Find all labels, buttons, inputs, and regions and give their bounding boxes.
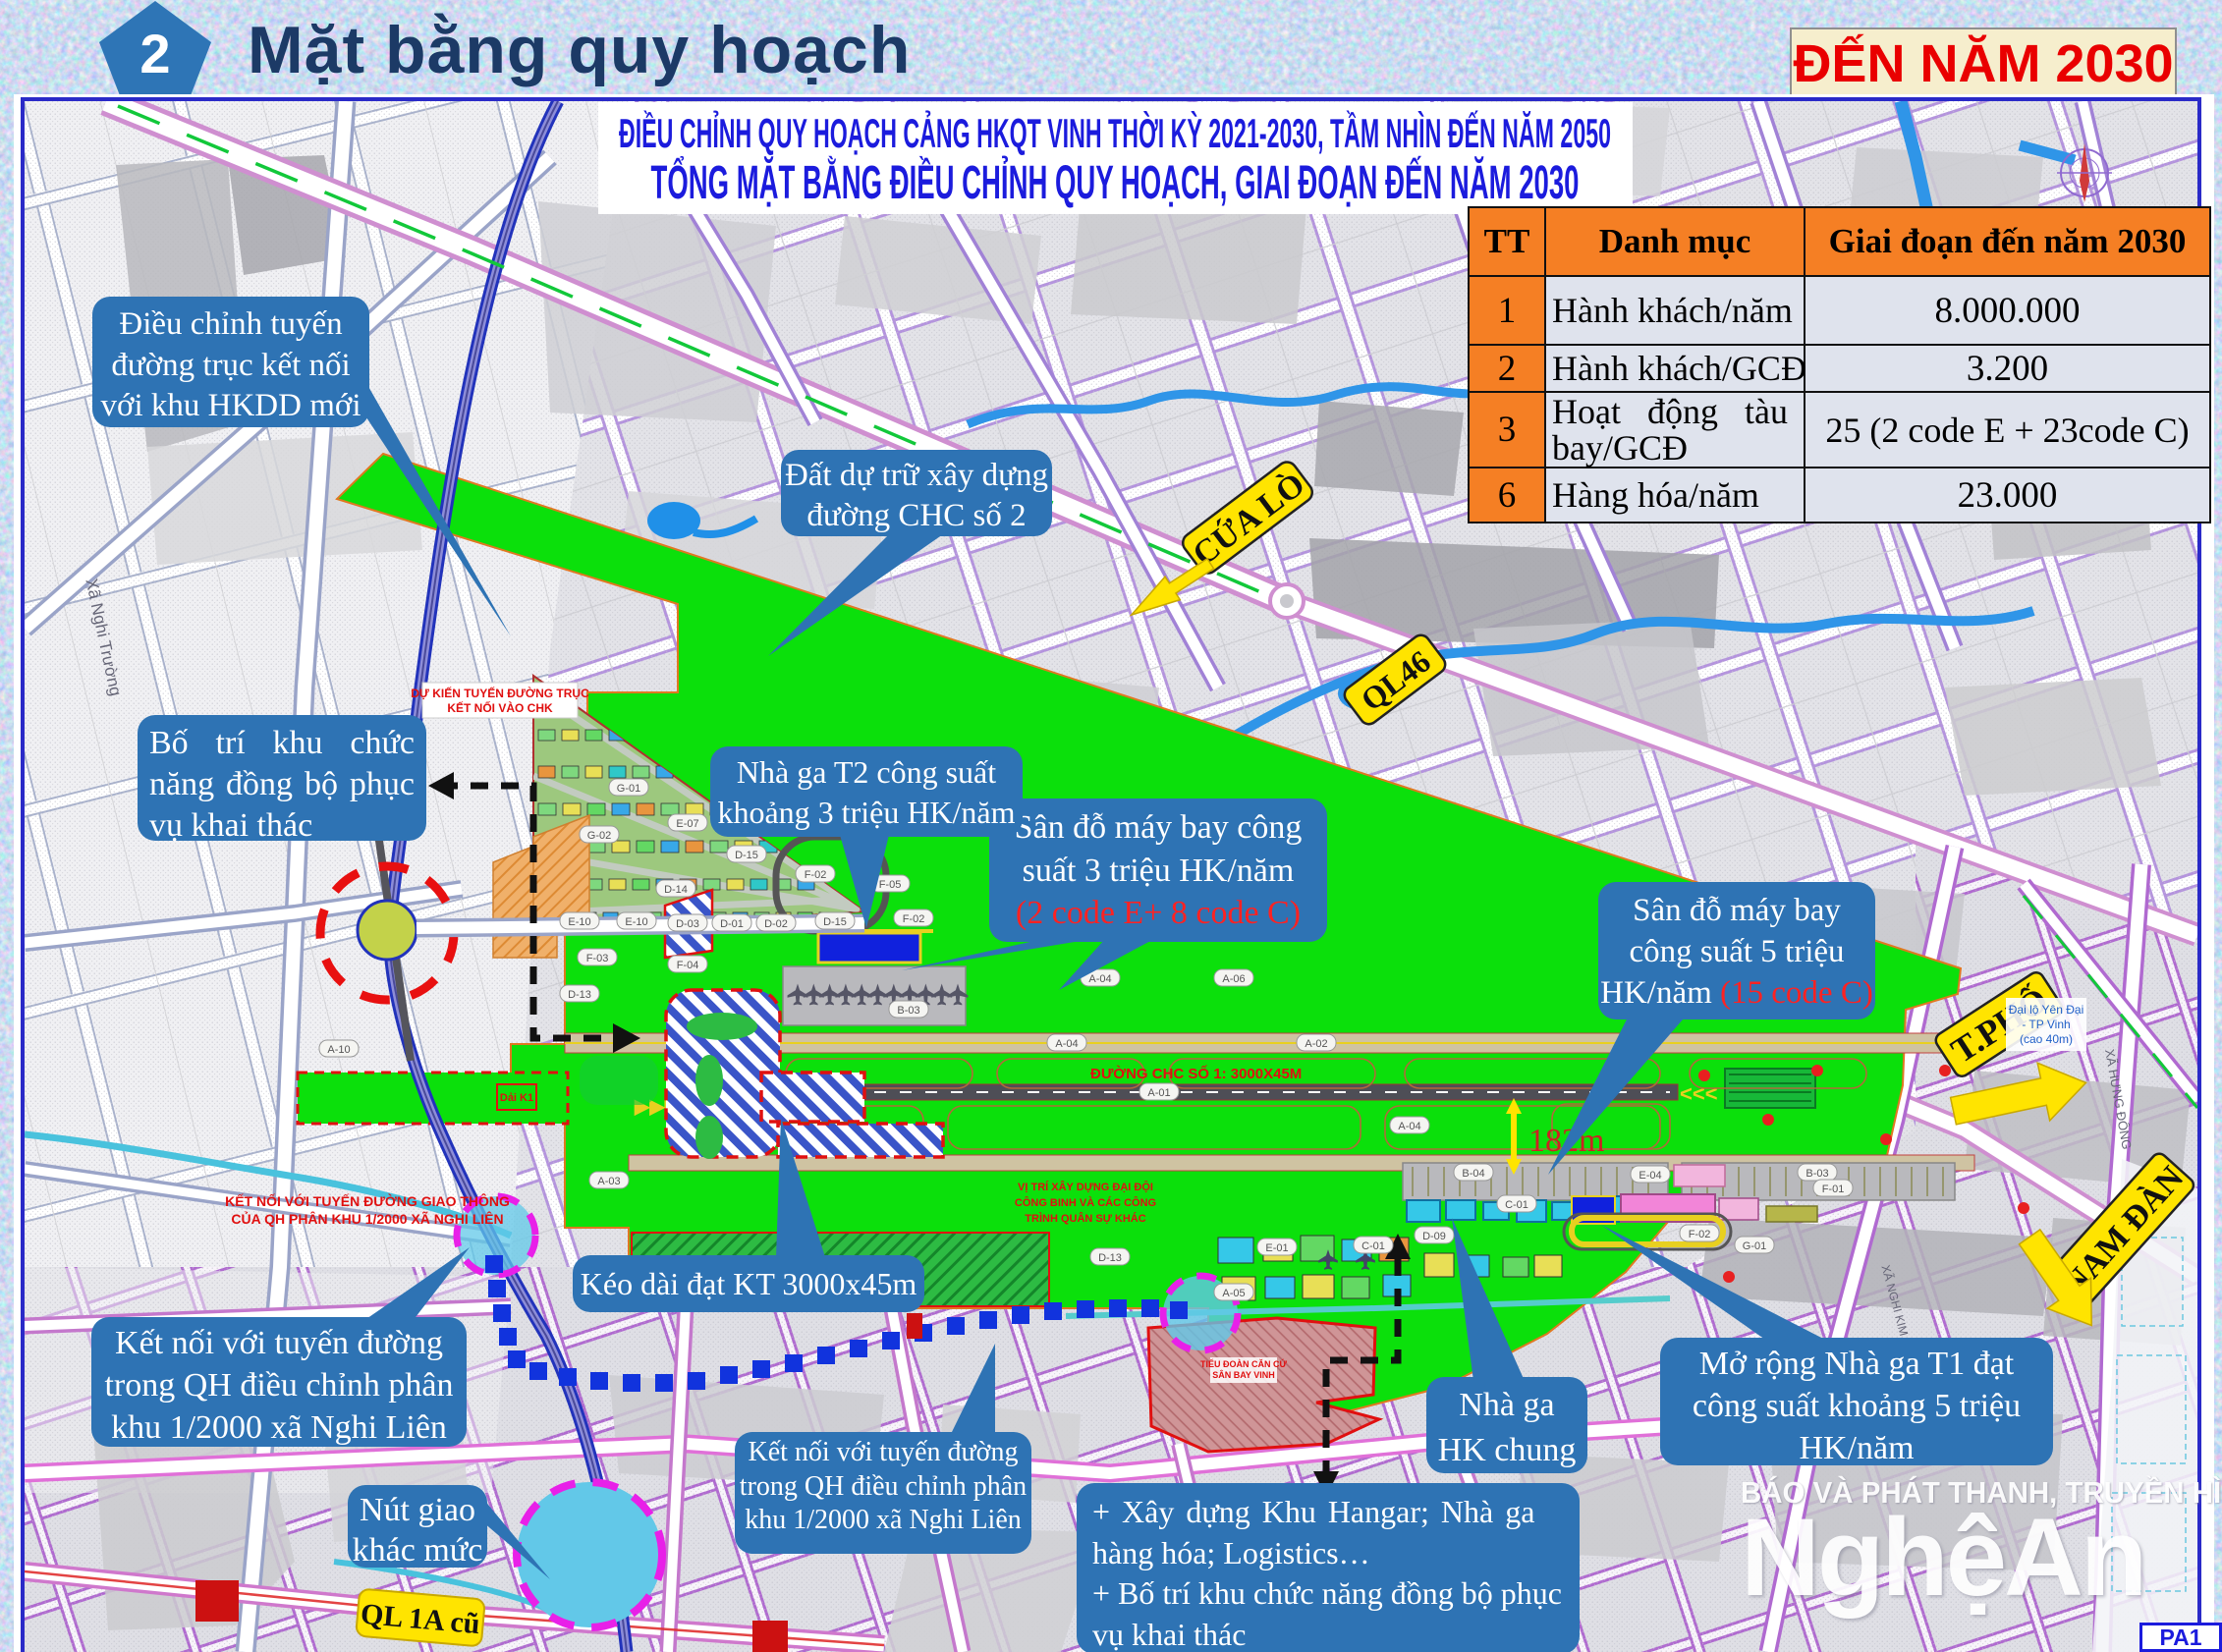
svg-text:A-04: A-04 (1398, 1121, 1420, 1132)
svg-text:E-07: E-07 (676, 818, 698, 830)
svg-text:D-13: D-13 (568, 989, 591, 1001)
svg-text:Dải K1: Dải K1 (500, 1092, 533, 1104)
svg-text:E-10: E-10 (568, 916, 590, 928)
svg-text:CÔNG BINH VÀ CÁC CÔNG: CÔNG BINH VÀ CÁC CÔNG (1015, 1196, 1156, 1209)
svg-text:C-01: C-01 (1361, 1240, 1385, 1252)
svg-text:E-01: E-01 (1265, 1242, 1288, 1254)
svg-text:DỰ KIẾN TUYẾN ĐƯỜNG TRỤC: DỰ KIẾN TUYẾN ĐƯỜNG TRỤC (411, 686, 589, 700)
svg-text:A-01: A-01 (1147, 1087, 1170, 1099)
svg-text:ĐƯỜNG CHC SỐ 1: 3000X45M: ĐƯỜNG CHC SỐ 1: 3000X45M (1090, 1065, 1302, 1082)
svg-text:C-01: C-01 (1505, 1199, 1528, 1211)
svg-text:A-10: A-10 (327, 1044, 350, 1056)
svg-text:D-03: D-03 (676, 918, 699, 930)
svg-text:CỦA QH PHÂN KHU 1/2000 XÃ NGHI: CỦA QH PHÂN KHU 1/2000 XÃ NGHI LIÊN (231, 1210, 503, 1227)
svg-text:F-01: F-01 (1822, 1184, 1845, 1195)
svg-text:A-02: A-02 (1305, 1038, 1327, 1050)
svg-text:- TP Vinh: - TP Vinh (2022, 1018, 2070, 1031)
svg-text:ĐIỀU CHỈNH QUY HOẠCH CẢNG HKQT: ĐIỀU CHỈNH QUY HOẠCH CẢNG HKQT VINH THỜI… (619, 109, 1611, 156)
svg-text:G-01: G-01 (617, 783, 640, 795)
svg-text:F-04: F-04 (677, 960, 699, 971)
svg-text:B-03: B-03 (1805, 1168, 1828, 1180)
svg-text:D-14: D-14 (664, 884, 688, 896)
svg-text:F-02: F-02 (903, 913, 925, 925)
svg-text:D-15: D-15 (823, 916, 847, 928)
svg-text:F-02: F-02 (1689, 1229, 1711, 1240)
svg-text:A-03: A-03 (597, 1176, 620, 1187)
svg-text:D-09: D-09 (1422, 1231, 1446, 1242)
svg-text:KẾT NỐI VỚI TUYẾN ĐƯỜNG GIAO T: KẾT NỐI VỚI TUYẾN ĐƯỜNG GIAO THÔNG (225, 1192, 510, 1209)
svg-text:E-04: E-04 (1639, 1170, 1661, 1182)
svg-text:(cao 40m): (cao 40m) (2020, 1032, 2073, 1046)
svg-text:D-13: D-13 (1098, 1252, 1122, 1264)
svg-text:G-02: G-02 (587, 830, 611, 842)
svg-text:F-03: F-03 (586, 953, 609, 964)
svg-text:F-02: F-02 (805, 869, 827, 881)
svg-text:A-05: A-05 (1222, 1288, 1245, 1299)
svg-text:D-02: D-02 (764, 918, 788, 930)
svg-text:A-04: A-04 (1055, 1038, 1078, 1050)
svg-text:SÂN BAY VINH: SÂN BAY VINH (1212, 1369, 1275, 1380)
svg-text:Đại lộ Yên Đại: Đại lộ Yên Đại (2009, 1003, 2084, 1017)
svg-text:<<<: <<< (1680, 1081, 1718, 1106)
svg-text:TIỂU ĐOÀN CĂN CỨ: TIỂU ĐOÀN CĂN CỨ (1200, 1358, 1287, 1369)
svg-text:TRÌNH QUÂN SỰ KHÁC: TRÌNH QUÂN SỰ KHÁC (1025, 1212, 1145, 1225)
svg-text:TỔNG MẶT BẰNG ĐIỀU CHỈNH QUY H: TỔNG MẶT BẰNG ĐIỀU CHỈNH QUY HOẠCH, GIAI… (651, 155, 1580, 209)
svg-text:E-10: E-10 (625, 916, 647, 928)
svg-text:G-01: G-01 (1743, 1240, 1766, 1252)
svg-text:B-03: B-03 (897, 1005, 919, 1017)
svg-text:F-05: F-05 (879, 879, 902, 891)
svg-text:B-04: B-04 (1462, 1168, 1484, 1180)
svg-text:D-01: D-01 (720, 918, 744, 930)
svg-text:VỊ TRÍ XÂY DỰNG ĐẠI ĐỘI: VỊ TRÍ XÂY DỰNG ĐẠI ĐỘI (1018, 1181, 1153, 1193)
svg-text:KẾT NỐI VÀO CHK: KẾT NỐI VÀO CHK (447, 700, 553, 715)
svg-text:A-06: A-06 (1222, 973, 1245, 985)
svg-text:A-04: A-04 (1088, 973, 1111, 985)
svg-text:D-15: D-15 (735, 850, 758, 861)
